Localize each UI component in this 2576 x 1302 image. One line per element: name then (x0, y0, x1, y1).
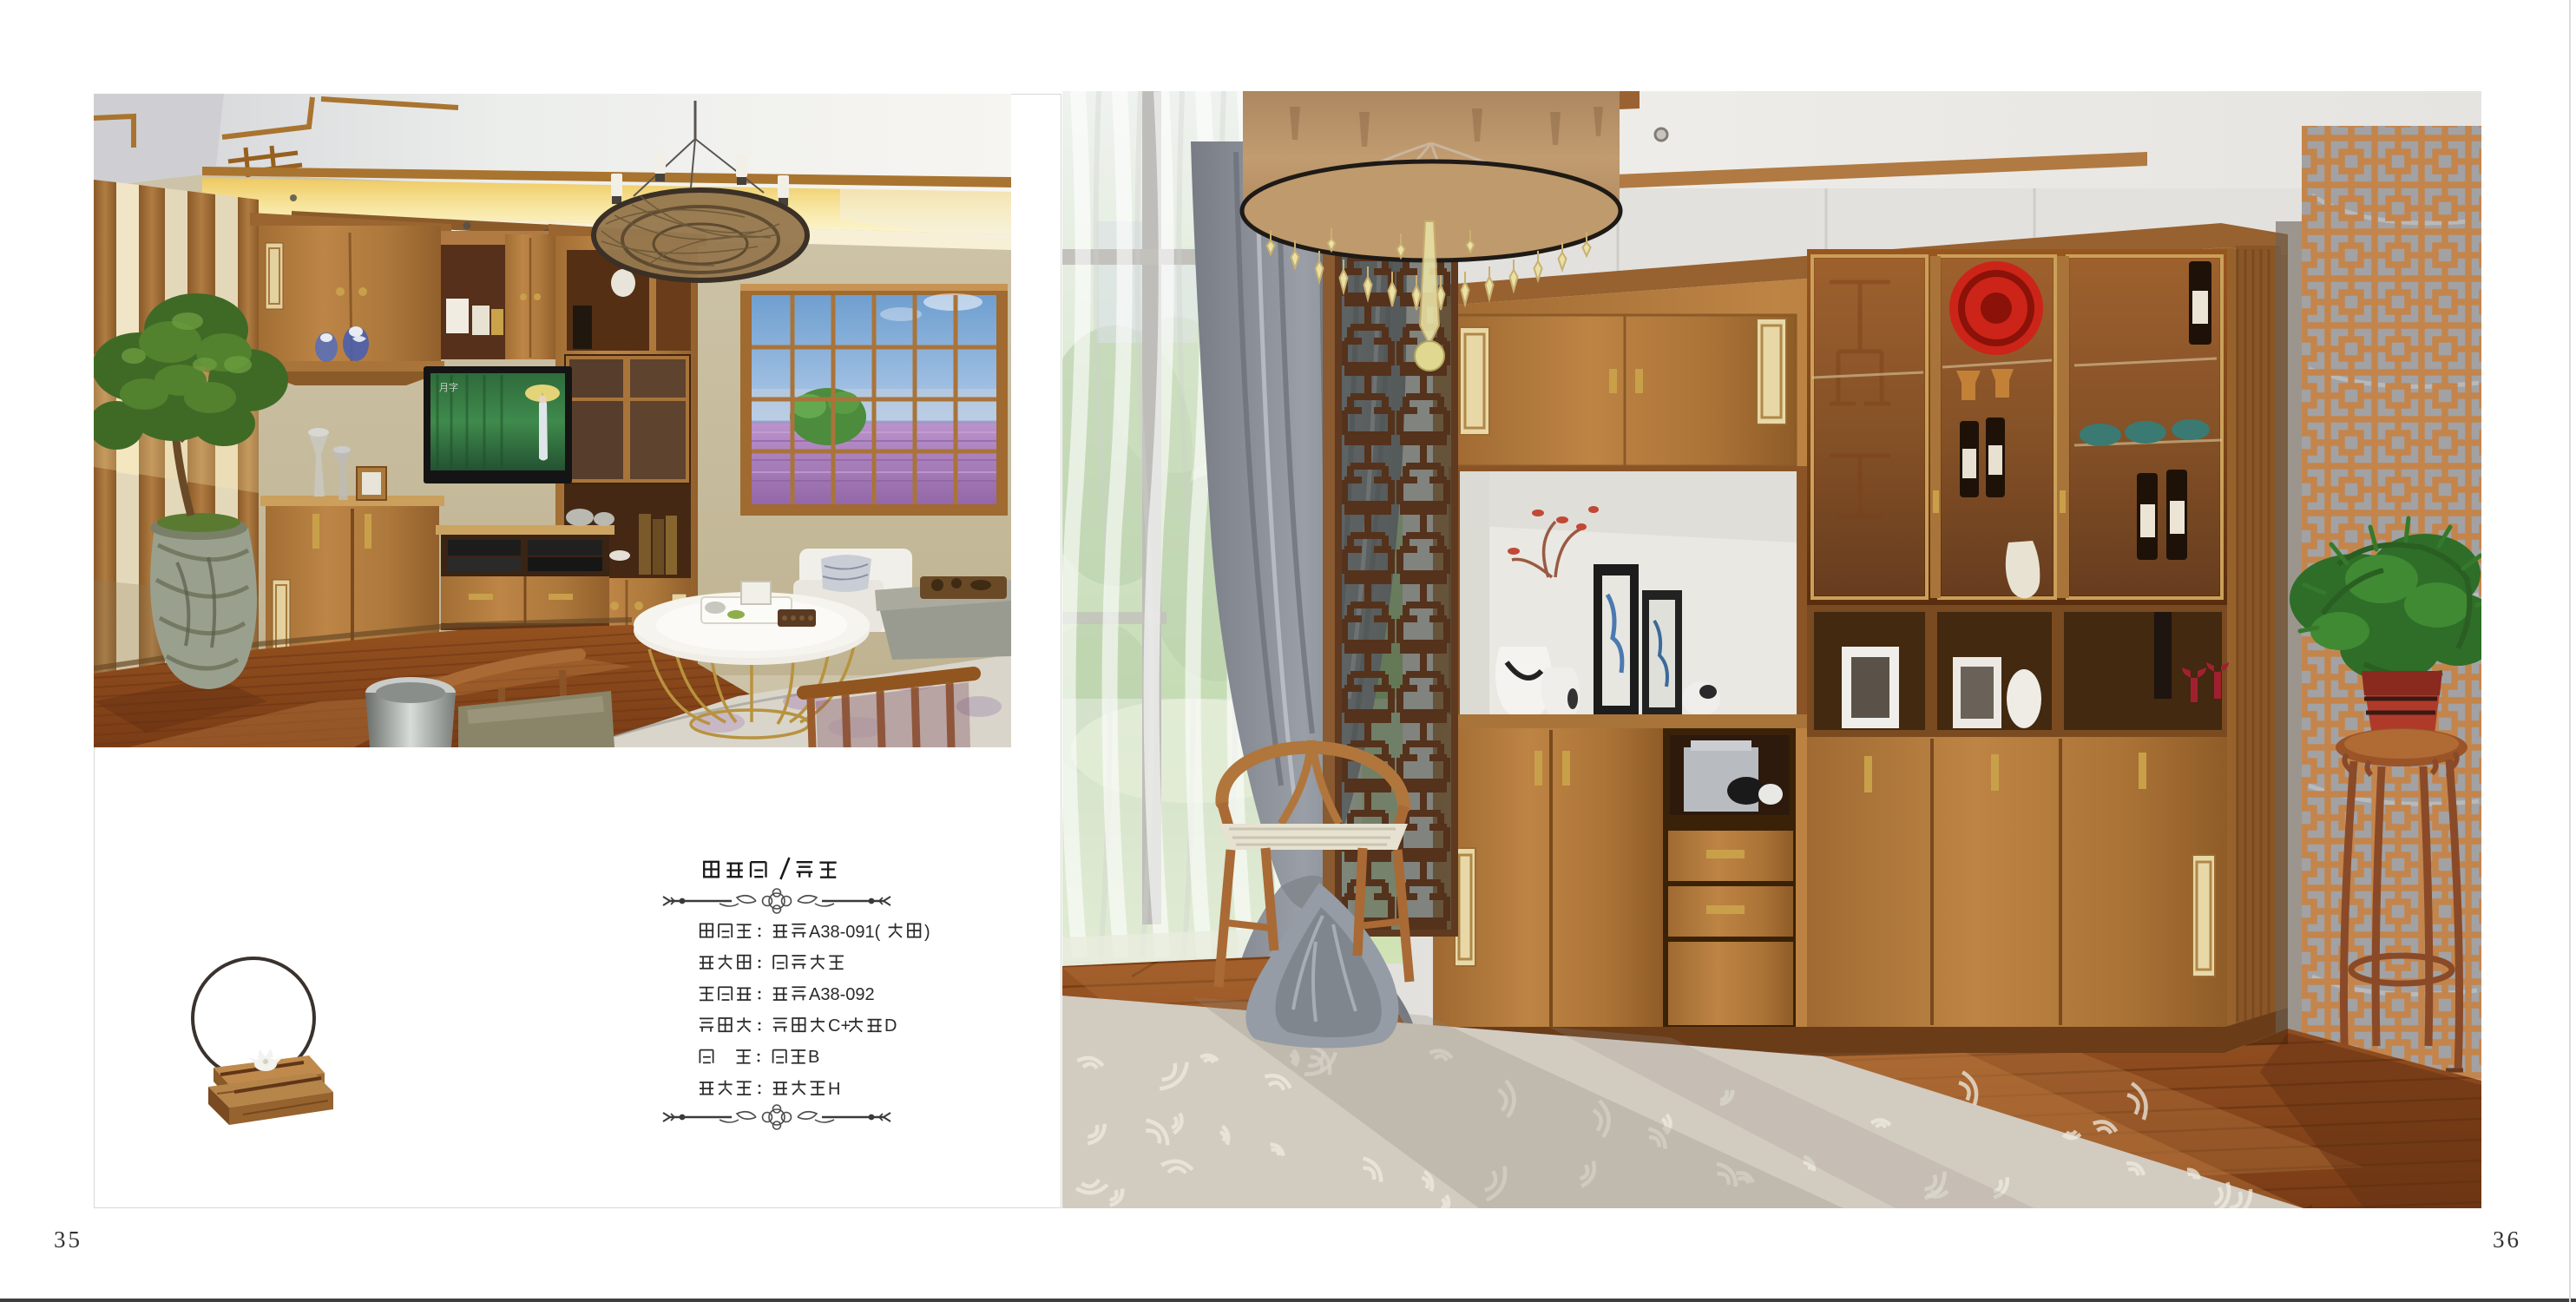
svg-text:A38-092: A38-092 (809, 985, 875, 1004)
svg-text:月字: 月字 (439, 381, 458, 393)
svg-text:H: H (828, 1080, 840, 1099)
svg-text:B: B (808, 1048, 819, 1067)
svg-text:D: D (884, 1016, 897, 1036)
svg-text:C+: C+ (828, 1016, 851, 1036)
svg-text:): ) (924, 923, 930, 942)
svg-text:A38-091(: A38-091( (809, 923, 881, 942)
